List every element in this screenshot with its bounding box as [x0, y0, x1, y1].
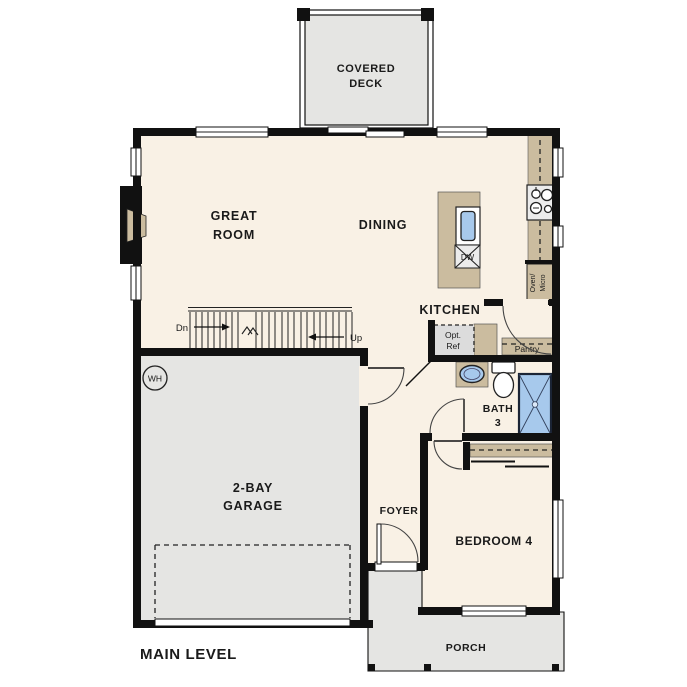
- bath-label: BATH: [483, 403, 513, 415]
- covered-deck-label: DECK: [349, 78, 383, 90]
- wall-pantry-stub: [549, 299, 560, 306]
- oven-micro-label: Oven/: [530, 274, 537, 293]
- cooktop-burner: [542, 190, 553, 201]
- pantry-label: Pantry: [515, 344, 540, 354]
- cooktop-burner: [532, 190, 540, 198]
- cooktop-burner: [545, 206, 552, 213]
- deck-slider-panel: [328, 127, 368, 133]
- covered-deck-area: COVERED DECK: [297, 8, 434, 128]
- kitchen-label: KITCHEN: [419, 303, 480, 317]
- covered-deck-label: COVERED: [337, 63, 396, 75]
- garage-overhead-door: [155, 619, 350, 626]
- floor-plan-page: PORCH COVERED DECK WH 2-BAY GARAGE Oven/…: [0, 0, 687, 687]
- foyer-label: FOYER: [380, 505, 419, 517]
- wall-west: [133, 128, 141, 628]
- dining-label: DINING: [359, 218, 408, 232]
- great-room-label: ROOM: [213, 228, 255, 242]
- porch-post: [552, 664, 559, 671]
- wall-pantry-stub: [484, 299, 503, 306]
- counter-by-ref: [474, 324, 497, 357]
- pantry-opening: [503, 299, 548, 306]
- garage-area: WH 2-BAY GARAGE: [139, 354, 362, 622]
- floor-plan-svg: PORCH COVERED DECK WH 2-BAY GARAGE Oven/…: [0, 0, 687, 687]
- porch-label: PORCH: [446, 642, 486, 654]
- bedroom-label: BEDROOM 4: [455, 534, 532, 548]
- deck-slider-panel: [366, 131, 404, 137]
- shower-drain: [532, 402, 538, 408]
- great-room-label: GREAT: [211, 209, 258, 223]
- oven-micro-label: Micro: [540, 274, 547, 291]
- stairs-up-label: Up: [350, 333, 362, 344]
- porch-post: [368, 664, 375, 671]
- wall-ref-side: [428, 320, 435, 362]
- bath-label: 3: [495, 417, 501, 429]
- garage-door-opening: [359, 366, 369, 406]
- deck-post: [297, 8, 310, 21]
- wall-bath-north: [428, 355, 560, 362]
- toilet-bowl: [494, 373, 514, 398]
- closet-side-wall: [463, 442, 470, 470]
- stairs-down-label: Dn: [176, 323, 188, 334]
- garage-label: 2-BAY: [233, 481, 273, 495]
- water-heater-label: WH: [148, 374, 162, 384]
- foyer-floor-area: [364, 354, 424, 566]
- oven-cabinet-wall-top: [525, 260, 555, 264]
- wall-garage-north: [133, 348, 368, 356]
- toilet-tank: [492, 362, 515, 373]
- plan-title: MAIN LEVEL: [140, 646, 237, 663]
- garage-label: GARAGE: [223, 499, 283, 513]
- opt-ref-label: Opt.: [445, 330, 461, 340]
- deck-post: [421, 8, 434, 21]
- porch-post: [424, 664, 431, 671]
- dishwasher-label: DW: [461, 253, 475, 262]
- wall-foyer-bedroom: [420, 437, 428, 570]
- opt-ref-label: Ref: [446, 341, 460, 351]
- front-door-leaf: [377, 524, 381, 564]
- island-sink: [461, 212, 475, 241]
